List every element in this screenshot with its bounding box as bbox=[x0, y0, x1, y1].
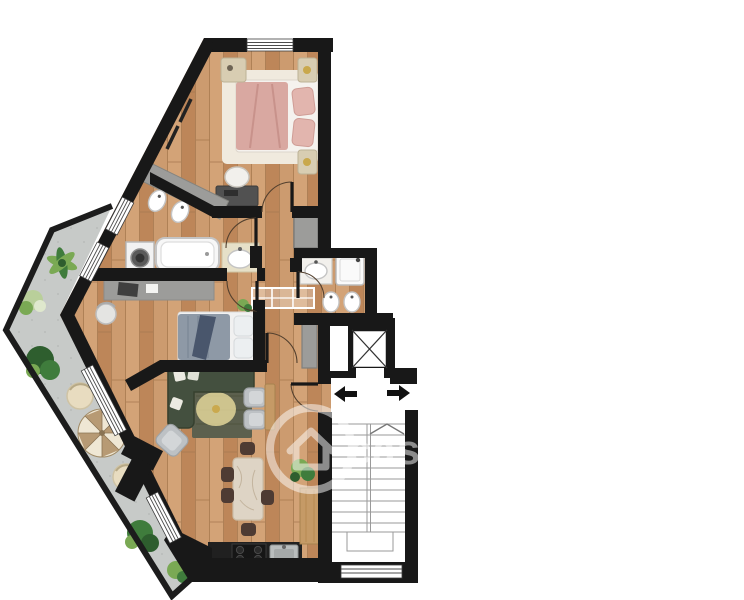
washbasin bbox=[228, 250, 252, 268]
wall-right-upper bbox=[318, 38, 331, 255]
stairs-arrow-right-icon bbox=[387, 385, 410, 401]
window-bedroom-top bbox=[247, 39, 293, 51]
dining-chair-left-1 bbox=[221, 467, 234, 482]
wall-bedroom-bottom-left bbox=[212, 206, 262, 218]
office-chair bbox=[96, 304, 116, 324]
bed-master-pillow-2 bbox=[292, 118, 316, 147]
wall-kitchen-bottom bbox=[200, 558, 332, 582]
laptop bbox=[117, 282, 138, 297]
basin-faucet bbox=[238, 247, 242, 251]
armchair-right-2-seat bbox=[249, 413, 263, 426]
bed-master-pillow-1 bbox=[291, 87, 315, 116]
elevator-door-slot bbox=[356, 368, 384, 381]
floor-lamp bbox=[212, 405, 220, 413]
bed2-pillow-2 bbox=[234, 338, 253, 358]
burner-2 bbox=[254, 546, 261, 553]
entrance-arrow-left-icon bbox=[334, 386, 357, 402]
bath2-faucet bbox=[314, 260, 318, 264]
window-stairwell bbox=[341, 565, 402, 578]
nightstand-top-left bbox=[221, 58, 246, 82]
bathtub-drain bbox=[205, 252, 209, 256]
bathroom-main bbox=[126, 238, 259, 272]
landing-arrows bbox=[334, 385, 410, 402]
floorplan: casa.it bbox=[0, 0, 744, 600]
burner-1 bbox=[236, 546, 243, 553]
lamp-top-right bbox=[303, 66, 311, 74]
wall-landing-step bbox=[390, 368, 417, 384]
bath2-bidet-tap bbox=[351, 296, 354, 299]
wall-bath2-left-stub bbox=[290, 258, 302, 272]
lamp-bottom-right bbox=[303, 158, 311, 166]
watermark-text: casa.it bbox=[348, 426, 486, 473]
stair-landing bbox=[347, 532, 393, 551]
dining-chair-top bbox=[240, 442, 255, 455]
wall-bedroom2-right bbox=[253, 300, 265, 362]
console-table bbox=[265, 384, 275, 430]
bath2-bidet bbox=[344, 292, 360, 312]
wall-bath1-bottom-stub bbox=[257, 268, 265, 281]
wall-bath1-bottom bbox=[88, 268, 227, 281]
dining-chair-left-2 bbox=[221, 488, 234, 503]
elevator-niche bbox=[330, 326, 348, 371]
wall-bedroom-bottom-right bbox=[292, 206, 322, 218]
wall-bath1-right bbox=[250, 246, 262, 268]
desk-papers bbox=[146, 284, 158, 293]
vanity-chair bbox=[225, 167, 249, 187]
washing-machine-drum bbox=[136, 254, 145, 263]
kitchen-faucet bbox=[282, 545, 286, 549]
bath2-washbasin bbox=[305, 263, 327, 279]
shower-head bbox=[356, 258, 360, 262]
dining-chair-bottom bbox=[241, 523, 256, 536]
wall-bath2-top bbox=[294, 248, 377, 258]
bath2-toilet bbox=[323, 292, 339, 312]
armchair-right-1-seat bbox=[249, 391, 263, 404]
bath2-toilet-button bbox=[330, 296, 333, 299]
floorplan-page: casa.it bbox=[0, 0, 744, 600]
entry-closet bbox=[302, 318, 317, 368]
hall-closet-gray bbox=[294, 214, 318, 248]
bed2-pillow-1 bbox=[234, 316, 253, 336]
vanity-mirror bbox=[224, 190, 238, 196]
dining-chair-right bbox=[261, 490, 274, 505]
decor-top-left bbox=[227, 65, 233, 71]
bed-master-duvet bbox=[236, 82, 288, 150]
